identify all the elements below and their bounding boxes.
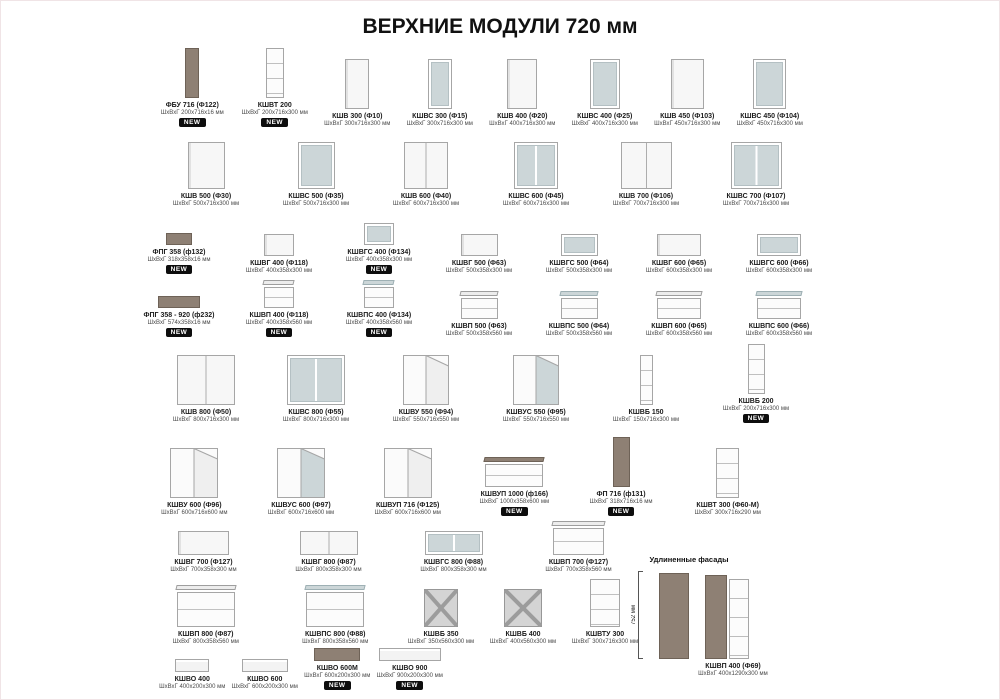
- flip-up-cabinet-glyph: [757, 291, 801, 319]
- new-badge: NEW: [261, 118, 288, 127]
- product-dims: ШхВхГ 600х358х300 мм: [646, 268, 712, 274]
- extended-cabinet-shelves: [729, 579, 749, 659]
- flip-door: [756, 291, 803, 296]
- corner-cabinet-glyph: [277, 448, 325, 498]
- product-dims: ШхВхГ 600х716х300 мм: [393, 201, 459, 207]
- cabinet-illustration: [345, 57, 369, 109]
- cabinet-illustration: [561, 288, 598, 319]
- flip-up-cabinet-glyph: [461, 291, 498, 319]
- extended-facade-panel: [659, 573, 689, 659]
- product-card: КШВ 600 (Ф40)ШхВхГ 600х716х300 мм: [371, 141, 481, 207]
- cabinet-illustration: [461, 232, 498, 256]
- product-dims: ШхВхГ 700х358х300 мм: [170, 567, 236, 573]
- open-shelf-dark-glyph: [314, 648, 360, 661]
- product-dims: ШхВхГ 600х358х560 мм: [746, 331, 812, 337]
- cabinet-illustration: [177, 579, 235, 627]
- product-name: КШВУП 1000 (ф166): [481, 491, 548, 498]
- product-card: КШВУС 600 (Ф97)ШхВхГ 600х716х600 мм: [248, 446, 355, 516]
- product-name: КШВП 400 (Ф69): [683, 663, 783, 670]
- product-dims: ШхВхГ 574х358х16 мм: [148, 320, 211, 326]
- product-card: ФПГ 358 - 920 (ф232)ШхВхГ 574х358х16 ммN…: [129, 277, 229, 337]
- product-dims: ШхВхГ 550х716х550 мм: [393, 417, 459, 423]
- cabinet-illustration: [264, 232, 294, 256]
- product-name: КШВП 400 (Ф118): [250, 312, 309, 319]
- corner-cabinet-glyph: [403, 355, 449, 405]
- product-card: КШВ 500 (Ф30)ШхВхГ 500х716х300 мм: [151, 141, 261, 207]
- product-name: ФПГ 358 (ф132): [152, 249, 205, 256]
- product-name: КШВПС 800 (Ф88): [305, 631, 365, 638]
- product-dims: ШхВхГ 450х716х300 мм: [654, 121, 720, 127]
- double-door-cabinet-glyph: [621, 142, 672, 189]
- flip-door: [175, 585, 237, 590]
- product-card: КШВГ 600 (Ф65)ШхВхГ 600х358х300 мм: [629, 232, 729, 274]
- product-dims: ШхВхГ 800х358х300 мм: [420, 567, 486, 573]
- product-name: КШВ 300 (Ф10): [332, 113, 382, 120]
- facade-panel-glyph: [613, 437, 630, 487]
- product-card: КШВ 400 (Ф20)ШхВхГ 400х716х300 мм: [481, 57, 564, 127]
- product-name: КШВПС 600 (Ф66): [749, 323, 809, 330]
- product-row: КШВП 800 (Ф87)ШхВхГ 800х358х560 ммКШВПС …: [141, 579, 646, 645]
- cabinet-illustration: [613, 435, 630, 487]
- corner-cabinet-glyph: [170, 448, 218, 498]
- product-dims: ШхВхГ 200х716х300 мм: [242, 110, 308, 116]
- cabinet-body: [553, 528, 604, 555]
- cabinet-illustration: [166, 221, 192, 245]
- product-name: КШВБ 400: [505, 631, 540, 638]
- product-card: КШВПС 400 (Ф134)ШхВхГ 400х358х560 ммNEW: [329, 277, 429, 337]
- product-dims: ШхВхГ 800х358х560 мм: [173, 639, 239, 645]
- cabinet-illustration: [266, 46, 284, 98]
- glass-pane: [290, 358, 342, 402]
- new-badge: NEW: [366, 328, 393, 337]
- product-card: КШВС 300 (Ф15)ШхВхГ 300х716х300 мм: [399, 57, 482, 127]
- cabinet-illustration: [757, 232, 801, 256]
- new-badge: NEW: [501, 507, 528, 516]
- product-row: КШВУ 600 (Ф96)ШхВхГ 600х716х600 ммКШВУС …: [141, 435, 781, 516]
- product-card: КШВП 400 (Ф118)ШхВхГ 400х358х560 ммNEW: [229, 277, 329, 337]
- cabinet-illustration: [264, 277, 294, 308]
- double-door-cabinet-glyph: [177, 355, 235, 405]
- product-dims: ШхВхГ 800х358х300 мм: [295, 567, 361, 573]
- product-card: КШВ 300 (Ф10)ШхВхГ 300х716х300 мм: [316, 57, 399, 127]
- cabinet-illustration: [306, 579, 364, 627]
- door-cabinet-glyph: [461, 234, 498, 256]
- product-card: КШВПС 500 (Ф64)ШхВхГ 500х358х560 мм: [529, 288, 629, 337]
- glass-pane: [760, 237, 798, 253]
- glass-door-cabinet-glyph: [753, 59, 786, 109]
- product-card: КШВТ 300 (Ф60-М)ШхВхГ 300х716х290 мм: [674, 446, 781, 516]
- product-row: КШВ 800 (Ф50)ШхВхГ 800х716х300 ммКШВС 80…: [151, 342, 811, 423]
- cabinet-illustration: [590, 57, 620, 109]
- glass-pane: [517, 145, 555, 186]
- flip-door: [459, 291, 499, 296]
- glass-pane: [756, 62, 783, 106]
- cabinet-illustration: [170, 446, 218, 498]
- product-dims: ШхВхГ 500х716х300 мм: [283, 201, 349, 207]
- cabinet-illustration: [504, 579, 542, 627]
- open-shelf-cabinet-glyph: [748, 344, 765, 394]
- product-dims: ШхВхГ 400х358х560 мм: [346, 320, 412, 326]
- cabinet-body: [561, 298, 598, 319]
- glass-pane: [564, 237, 595, 253]
- product-name: КШВГ 700 (Ф127): [174, 559, 232, 566]
- product-name: КШВ 700 (Ф106): [619, 193, 673, 200]
- product-card: КШВБ 400ШхВхГ 400х560х300 мм: [482, 579, 564, 645]
- product-card: КШВГ 500 (Ф63)ШхВхГ 500х358х300 мм: [429, 232, 529, 274]
- door-cabinet-glyph: [507, 59, 537, 109]
- glass-pane: [428, 534, 480, 552]
- product-dims: ШхВхГ 500х358х300 мм: [546, 268, 612, 274]
- cabinet-illustration: [379, 646, 441, 661]
- cabinet-illustration: [671, 57, 704, 109]
- open-shelf-cabinet-glyph: [590, 579, 620, 627]
- open-shelf-glyph: [242, 659, 288, 672]
- product-card: КШВБ 350ШхВхГ 350х560х300 мм: [400, 579, 482, 645]
- cabinet-illustration: [657, 288, 701, 319]
- product-name: КШВУС 600 (Ф97): [271, 502, 331, 509]
- product-dims: ШхВхГ 700х716х300 мм: [613, 201, 679, 207]
- cabinet-illustration: [513, 353, 559, 405]
- cabinet-illustration: [425, 519, 483, 555]
- cabinet-illustration: [507, 57, 537, 109]
- extended-facades-section: Удлиненные фасады 752 мм КШВП 400 (Ф69) …: [631, 555, 791, 677]
- extended-facades-drawings: 752 мм: [631, 567, 791, 659]
- product-dims: ШхВхГ 600х716х600 мм: [268, 510, 334, 516]
- door-cabinet-glyph: [671, 59, 704, 109]
- product-name: КШВС 600 (Ф45): [508, 193, 563, 200]
- product-name: КШВБ 150: [628, 409, 663, 416]
- new-badge: NEW: [366, 265, 393, 274]
- flip-door: [363, 280, 395, 285]
- product-name: КШВП 800 (Ф87): [178, 631, 233, 638]
- product-card: КШВУП 1000 (ф166)ШхВхГ 1000х358х600 ммNE…: [461, 435, 568, 516]
- product-name: КШВГ 600 (Ф65): [652, 260, 706, 267]
- open-shelf-glyph: [379, 648, 441, 661]
- flip-up-cabinet-glyph: [553, 521, 604, 555]
- cabinet-illustration: [384, 446, 432, 498]
- product-card: КШВУП 716 (Ф125)ШхВхГ 600х716х600 мм: [354, 446, 461, 516]
- glass-door-cabinet-glyph: [757, 234, 801, 256]
- cabinet-illustration: [716, 446, 739, 498]
- product-dims: ШхВхГ 400х358х560 мм: [246, 320, 312, 326]
- cabinet-body: [657, 298, 701, 319]
- product-card: КШВУС 550 (Ф95)ШхВхГ 550х716х550 мм: [481, 353, 591, 423]
- product-card: КШВС 400 (Ф25)ШхВхГ 400х716х300 мм: [564, 57, 647, 127]
- new-badge: NEW: [743, 414, 770, 423]
- product-name: КШВУС 550 (Ф95): [506, 409, 566, 416]
- cabinet-illustration: [428, 57, 452, 109]
- cabinet-illustration: [277, 446, 325, 498]
- cabinet-illustration: [314, 646, 360, 661]
- flip-door: [263, 280, 295, 285]
- product-card: КШВП 800 (Ф87)ШхВхГ 800х358х560 мм: [141, 579, 271, 645]
- product-card: КШВ 450 (Ф103)ШхВхГ 450х716х300 мм: [646, 57, 729, 127]
- facade-panel-glyph: [166, 233, 192, 245]
- product-card: КШВГ 700 (Ф127)ШхВхГ 700х358х300 мм: [141, 519, 266, 573]
- product-card: КШВП 700 (Ф127)ШхВхГ 700х358х560 мм: [516, 519, 641, 573]
- glass-pane: [367, 226, 391, 242]
- product-card: КШВП 500 (Ф63)ШхВхГ 500х358х560 мм: [429, 288, 529, 337]
- product-name: КШВО 400: [175, 676, 210, 683]
- product-dims: ШхВхГ 800х358х560 мм: [302, 639, 368, 645]
- product-name: КШВ 600 (Ф40): [401, 193, 451, 200]
- cabinet-illustration: [177, 353, 235, 405]
- product-card: КШВС 450 (Ф104)ШхВхГ 450х716х300 мм: [729, 57, 812, 127]
- door-cabinet-glyph: [264, 234, 294, 256]
- product-name: КШВГС 500 (Ф64): [549, 260, 608, 267]
- product-dims: ШхВхГ 900х200х300 мм: [377, 673, 443, 679]
- product-dims: ШхВхГ 500х358х560 мм: [546, 331, 612, 337]
- product-name: КШВС 700 (Ф107): [726, 193, 785, 200]
- product-card: КШВГС 800 (Ф88)ШхВхГ 800х358х300 мм: [391, 519, 516, 573]
- product-name: КШВТ 300 (Ф60-М): [696, 502, 759, 509]
- cabinet-illustration: [175, 657, 209, 672]
- door-cabinet-glyph: [178, 531, 229, 555]
- facade-panel-glyph: [158, 296, 200, 308]
- cabinet-illustration: [298, 141, 335, 189]
- cabinet-illustration: [748, 342, 765, 394]
- glass-door-cabinet-glyph: [590, 59, 620, 109]
- flip-up-cabinet-glyph: [485, 457, 543, 487]
- flip-door: [656, 291, 703, 296]
- wine-rack-glyph: [504, 589, 542, 627]
- product-card: КШВО 900ШхВхГ 900х200х300 ммNEW: [374, 646, 447, 690]
- product-name: КШВО 600М: [317, 665, 358, 672]
- product-card: КШВ 800 (Ф50)ШхВхГ 800х716х300 мм: [151, 353, 261, 423]
- cabinet-illustration: [242, 657, 288, 672]
- flip-door: [484, 457, 546, 462]
- product-dims: ШхВхГ 300х716х290 мм: [695, 510, 761, 516]
- cabinet-illustration: [188, 141, 225, 189]
- product-name: КШВГ 800 (Ф87): [301, 559, 355, 566]
- cabinet-body: [364, 287, 394, 308]
- product-name: КШВПС 400 (Ф134): [347, 312, 411, 319]
- cabinet-body: [177, 592, 235, 627]
- product-dims: ШхВхГ 400х1290х300 мм: [683, 671, 783, 677]
- product-card: КШВС 700 (Ф107)ШхВхГ 700х716х300 мм: [701, 141, 811, 207]
- product-name: КШВС 500 (Ф35): [288, 193, 343, 200]
- product-name: КШВПС 500 (Ф64): [549, 323, 609, 330]
- flip-up-cabinet-glyph: [364, 280, 394, 308]
- product-dims: ШхВхГ 600х716х300 мм: [503, 201, 569, 207]
- cabinet-illustration: [657, 232, 701, 256]
- flip-up-cabinet-glyph: [561, 291, 598, 319]
- wine-rack-glyph: [424, 589, 458, 627]
- facade-panel-glyph: [185, 48, 199, 98]
- cabinet-illustration: [757, 288, 801, 319]
- product-card: КШВГС 500 (Ф64)ШхВхГ 500х358х300 мм: [529, 232, 629, 274]
- flip-door: [551, 521, 605, 526]
- glass-pane: [431, 62, 449, 106]
- cabinet-illustration: [553, 519, 604, 555]
- product-dims: ШхВхГ 600х200х300 мм: [304, 673, 370, 679]
- product-row: ФПГ 358 - 920 (ф232)ШхВхГ 574х358х16 ммN…: [129, 277, 829, 337]
- product-card: КШВС 500 (Ф35)ШхВхГ 500х716х300 мм: [261, 141, 371, 207]
- product-dims: ШхВхГ 400х560х300 мм: [490, 639, 556, 645]
- cabinet-illustration: [185, 46, 199, 98]
- product-name: КШВУ 600 (Ф96): [167, 502, 221, 509]
- glass-pane: [301, 145, 332, 186]
- cabinet-illustration: [461, 288, 498, 319]
- product-card: КШВПС 800 (Ф88)ШхВхГ 800х358х560 мм: [271, 579, 401, 645]
- product-dims: ШхВхГ 400х358х300 мм: [246, 268, 312, 274]
- cabinet-illustration: [178, 519, 229, 555]
- product-dims: ШхВхГ 800х716х300 мм: [283, 417, 349, 423]
- cabinet-illustration: [514, 141, 558, 189]
- product-dims: ШхВхГ 318х358х16 мм: [148, 257, 211, 263]
- product-name: КШВ 500 (Ф30): [181, 193, 231, 200]
- product-dims: ШхВхГ 400х716х300 мм: [572, 121, 638, 127]
- product-dims: ШхВхГ 600х358х300 мм: [746, 268, 812, 274]
- product-dims: ШхВхГ 1000х358х600 мм: [480, 499, 550, 505]
- cabinet-illustration: [753, 57, 786, 109]
- catalog-page: ВЕРХНИЕ МОДУЛИ 720 мм ФБУ 716 (Ф122)ШхВх…: [0, 0, 1000, 700]
- door-cabinet-glyph: [188, 142, 225, 189]
- glass-pane: [734, 145, 779, 186]
- product-row: КШВ 500 (Ф30)ШхВхГ 500х716х300 ммКШВС 50…: [151, 141, 811, 207]
- product-name: КШВ 400 (Ф20): [497, 113, 547, 120]
- cabinet-body: [306, 592, 364, 627]
- product-dims: ШхВхГ 350х560х300 мм: [408, 639, 474, 645]
- cabinet-illustration: [485, 435, 543, 487]
- glass-door-cabinet-glyph: [561, 234, 598, 256]
- product-dims: ШхВхГ 500х358х560 мм: [446, 331, 512, 337]
- cabinet-illustration: [640, 353, 653, 405]
- product-dims: ШхВхГ 800х716х300 мм: [173, 417, 239, 423]
- new-badge: NEW: [166, 265, 193, 274]
- new-badge: NEW: [266, 328, 293, 337]
- cabinet-illustration: [404, 141, 448, 189]
- cabinet-body: [461, 298, 498, 319]
- product-card: КШВС 600 (Ф45)ШхВхГ 600х716х300 мм: [481, 141, 591, 207]
- product-row: КШВГ 700 (Ф127)ШхВхГ 700х358х300 ммКШВГ …: [141, 519, 641, 573]
- product-card: КШВ 700 (Ф106)ШхВхГ 700х716х300 мм: [591, 141, 701, 207]
- product-name: ФП 716 (ф131): [597, 491, 646, 498]
- product-card: КШВУ 550 (Ф94)ШхВхГ 550х716х550 мм: [371, 353, 481, 423]
- new-badge: NEW: [166, 328, 193, 337]
- extended-cabinet-door: [705, 575, 727, 659]
- new-badge: NEW: [179, 118, 206, 127]
- product-dims: ШхВхГ 500х358х300 мм: [446, 268, 512, 274]
- product-name: КШВГС 800 (Ф88): [424, 559, 483, 566]
- product-dims: ШхВхГ 200х716х16 мм: [161, 110, 224, 116]
- product-name: ФБУ 716 (Ф122): [166, 102, 219, 109]
- product-card: КШВГ 800 (Ф87)ШхВхГ 800х358х300 мм: [266, 519, 391, 573]
- new-badge: NEW: [396, 681, 423, 690]
- corner-cabinet-glyph: [384, 448, 432, 498]
- product-dims: ШхВхГ 300х716х300 мм: [407, 121, 473, 127]
- product-name: КШВС 800 (Ф55): [288, 409, 343, 416]
- product-dims: ШхВхГ 600х358х560 мм: [646, 331, 712, 337]
- glass-door-cabinet-glyph: [364, 223, 394, 245]
- product-name: КШВБ 200: [738, 398, 773, 405]
- product-row: КШВО 400ШхВхГ 400х200х300 ммКШВО 600ШхВх…: [156, 646, 446, 690]
- product-row: ФБУ 716 (Ф122)ШхВхГ 200х716х16 ммNEWКШВТ…: [151, 46, 811, 127]
- glass-double-door-cabinet-glyph: [514, 142, 558, 189]
- vertical-dimension-label: 752 мм: [631, 605, 637, 625]
- product-card: КШВУ 600 (Ф96)ШхВхГ 600х716х600 мм: [141, 446, 248, 516]
- page-title: ВЕРХНИЕ МОДУЛИ 720 мм: [1, 1, 999, 39]
- double-door-cabinet-glyph: [404, 142, 448, 189]
- product-dims: ШхВхГ 400х716х300 мм: [489, 121, 555, 127]
- product-dims: ШхВхГ 700х358х560 мм: [545, 567, 611, 573]
- glass-double-door-cabinet-glyph: [731, 142, 782, 189]
- new-badge: NEW: [324, 681, 351, 690]
- product-card: КШВГ 400 (Ф118)ШхВхГ 400х358х300 мм: [229, 232, 329, 274]
- open-shelf-cabinet-glyph: [640, 355, 653, 405]
- cabinet-illustration: [403, 353, 449, 405]
- cabinet-illustration: [621, 141, 672, 189]
- product-dims: ШхВхГ 150х716х300 мм: [613, 417, 679, 423]
- product-name: КШВУ 550 (Ф94): [399, 409, 453, 416]
- product-dims: ШхВхГ 700х716х300 мм: [723, 201, 789, 207]
- product-card: КШВТ 200ШхВхГ 200х716х300 ммNEW: [234, 46, 317, 127]
- product-card: КШВГС 600 (Ф66)ШхВхГ 600х358х300 мм: [729, 232, 829, 274]
- product-name: КШВТУ 300: [586, 631, 624, 638]
- flip-up-cabinet-glyph: [657, 291, 701, 319]
- product-name: КШВГС 400 (Ф134): [347, 249, 410, 256]
- product-dims: ШхВхГ 200х716х300 мм: [723, 406, 789, 412]
- flip-up-cabinet-glyph: [306, 585, 364, 627]
- dimension-line: [638, 571, 643, 659]
- open-shelf-cabinet-glyph: [266, 48, 284, 98]
- product-name: КШВУП 716 (Ф125): [376, 502, 439, 509]
- flip-door: [304, 585, 366, 590]
- product-name: КШВГ 500 (Ф63): [452, 260, 506, 267]
- vertical-dimension: 752 мм: [631, 571, 643, 659]
- door-cabinet-glyph: [657, 234, 701, 256]
- flip-up-cabinet-glyph: [177, 585, 235, 627]
- product-name: КШВП 600 (Ф65): [651, 323, 706, 330]
- cabinet-body: [264, 287, 294, 308]
- cabinet-illustration: [364, 277, 394, 308]
- product-card: КШВГС 400 (Ф134)ШхВхГ 400х358х300 ммNEW: [329, 221, 429, 274]
- product-card: КШВП 600 (Ф65)ШхВхГ 600х358х560 мм: [629, 288, 729, 337]
- product-dims: ШхВхГ 300х716х300 мм: [572, 639, 638, 645]
- cabinet-illustration: [158, 277, 200, 308]
- product-dims: ШхВхГ 600х716х600 мм: [161, 510, 227, 516]
- product-dims: ШхВхГ 500х716х300 мм: [173, 201, 239, 207]
- product-dims: ШхВхГ 600х716х600 мм: [375, 510, 441, 516]
- cabinet-illustration: [364, 221, 394, 245]
- product-name: КШВБ 350: [423, 631, 458, 638]
- product-name: КШВС 300 (Ф15): [412, 113, 467, 120]
- product-row: ФПГ 358 (ф132)ШхВхГ 318х358х16 ммNEWКШВГ…: [129, 221, 829, 274]
- product-name: КШВС 450 (Ф104): [740, 113, 799, 120]
- cabinet-body: [485, 464, 543, 487]
- cabinet-illustration: [287, 353, 345, 405]
- product-card: КШВБ 200ШхВхГ 200х716х300 ммNEW: [701, 342, 811, 423]
- glass-pane: [593, 62, 617, 106]
- product-card: КШВО 600МШхВхГ 600х200х300 ммNEW: [301, 646, 374, 690]
- double-door-cabinet-glyph: [300, 531, 358, 555]
- product-name: КШВТ 200: [258, 102, 292, 109]
- product-name: ФПГ 358 - 920 (ф232): [144, 312, 215, 319]
- glass-double-door-cabinet-glyph: [287, 355, 345, 405]
- product-name: КШВГС 600 (Ф66): [749, 260, 808, 267]
- product-dims: ШхВхГ 550х716х550 мм: [503, 417, 569, 423]
- product-dims: ШхВхГ 600х200х300 мм: [232, 684, 298, 690]
- product-card: КШВП 400 (Ф69) ШхВхГ 400х1290х300 мм: [683, 663, 783, 677]
- glass-door-cabinet-glyph: [298, 142, 335, 189]
- product-card: КШВПС 600 (Ф66)ШхВхГ 600х358х560 мм: [729, 288, 829, 337]
- flip-door: [559, 291, 599, 296]
- cabinet-illustration: [561, 232, 598, 256]
- product-dims: ШхВхГ 300х716х300 мм: [324, 121, 390, 127]
- cabinet-body: [757, 298, 801, 319]
- cabinet-illustration: [731, 141, 782, 189]
- cabinet-illustration: [424, 579, 458, 627]
